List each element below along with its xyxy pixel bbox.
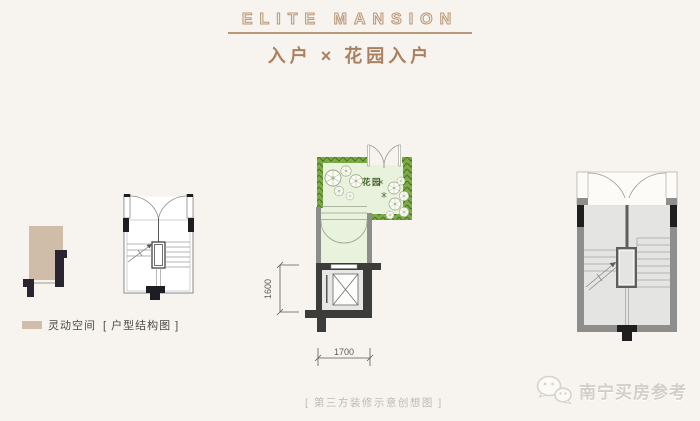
page-title: 入户 × 花园入户	[0, 42, 700, 68]
standard-plan	[550, 158, 695, 343]
watermark-text: 南宁买房参考	[579, 378, 687, 403]
flex-space-swatch	[22, 321, 42, 329]
flex-space-label: 灵动空间	[48, 317, 96, 333]
page: ELITE MANSION 入户 × 花园入户	[0, 0, 700, 421]
footer-caption: [ 第三方装修示意创想图 ]	[305, 395, 443, 410]
wechat-icon	[536, 374, 574, 406]
standard-door-opening	[588, 198, 666, 205]
dimension-height	[277, 262, 299, 315]
brand-title: ELITE MANSION	[242, 10, 458, 29]
legend: 灵动空间	[22, 317, 96, 333]
dim-width-label: 1700	[334, 347, 354, 357]
dim-height-label: 1600	[263, 279, 273, 299]
garden-label: 花园	[362, 177, 382, 187]
structure-plan	[112, 186, 197, 311]
header: ELITE MANSION 入户 × 花园入户	[0, 10, 700, 68]
structure-plan-caption: [ 户型结构图 ]	[103, 317, 179, 333]
watermark: 南宁买房参考	[536, 374, 687, 406]
flex-space-plan	[18, 212, 88, 302]
elevator	[305, 263, 381, 332]
brand-underline	[228, 32, 472, 34]
garden-gate	[367, 142, 402, 168]
garden-entry-plan: 花园	[253, 138, 423, 368]
